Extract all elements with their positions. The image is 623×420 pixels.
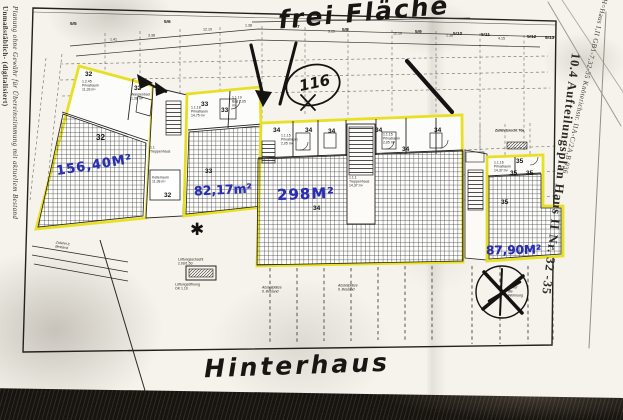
dimension-value: 1.41 [110,38,117,42]
room-number-34: 34 [273,127,280,134]
survey-tick-label: 5/12 [527,35,536,40]
room-number-32: 32 [164,192,171,199]
room-number-33: 33 [221,107,228,114]
area-label-unit-34: 298M² [277,184,335,204]
crossed-out-note: gilt für die Wohnung [508,286,522,298]
asterisk-mark-icon: ✱ [190,220,204,240]
room-number-32: 32 [134,85,141,92]
room-number-35: 35 [516,158,523,165]
room-number-34: 34 [375,127,382,134]
dimension-value: 5.25 [328,30,335,34]
room-number-34: 34 [402,146,409,153]
vent-annotation: Lüftungsschacht 2.00/1.50 [178,258,198,266]
room-annotation: 1.1.15 Privatraum 2,05 m² [383,133,397,145]
room-annotation: 1.1.18 Privatraum 14,75 m² [191,106,213,118]
room-number-34: 34 [305,127,312,134]
parking-annotation: Abstellplätze lt. Bestand [338,284,361,292]
dimension-value: 1.38 [446,34,453,38]
room-number-32: 32 [85,71,92,78]
room-annotation: 1.2.45 Privatraum 11,33 m² [82,80,106,92]
room-annotation: 1.1.19 Bad 2,05 m² [232,96,247,108]
room-number-33: 33 [205,168,212,175]
cellar-annotation: Kellerraum 11,38 m² [152,176,167,184]
driveway-lines [32,240,146,394]
survey-tick-label: 5/10 [453,32,462,37]
vent-annotation: Lüftungsöffnung OK 1.10 [175,283,195,291]
room-number-35: 35 [526,170,533,177]
vent-shaft-element [186,266,216,280]
stair-annotation: 1.1.1 Treppenhaus 14,37 m² [349,176,364,188]
dimension-value: 1.38 [245,24,252,28]
room-number-32: 32 [96,133,105,142]
survey-tick-label: 5/5 [70,22,77,27]
left-margin-note-line2: Planung ohne Gewähr für Übereinstimmung … [11,6,19,219]
area-label-unit-35: 87,90M² [486,243,541,258]
area-label-unit-33: 82,17m² [194,180,253,198]
dimension-value: 12.10 [393,32,402,36]
room-number-34: 34 [328,128,335,135]
stair-column-35 [465,150,487,260]
parking-stall-lines [270,266,553,344]
room-number-35: 35 [501,199,508,206]
room-number-34: 34 [434,127,441,134]
parking-annotation: Abstellplätze lt. Bestand [262,286,285,294]
survey-tick-label: 5/11 [481,33,490,38]
survey-tick-label: 5/9 [415,30,422,35]
dimension-value: 12.10 [203,28,212,32]
left-margin-note-line1: Unmaßstäblich- (digitalisiert) [1,6,9,106]
survey-tick-label: 5/6 [164,20,171,25]
room-annotation: 1.1.15 Privatraum 2,05 m² [281,134,295,146]
room-annotation: Wannenbad 1,38 m² [131,93,148,101]
dimension-value: 3.38 [148,34,155,38]
room-annotation: 1.1.16 Privatraum 14,37 m² [494,161,514,173]
scanned-floor-plan-document: Unmaßstäblich- (digitalisiert) Planung o… [0,0,623,420]
dimension-value: 4.15 [498,37,505,41]
access-right-annotation: Zufahrtsrecht 70a [495,129,524,133]
stair-annotation: 1.1 Treppenhaus [150,146,165,154]
room-number-34: 34 [313,205,320,212]
survey-tick-label: 5/13 [545,36,554,41]
